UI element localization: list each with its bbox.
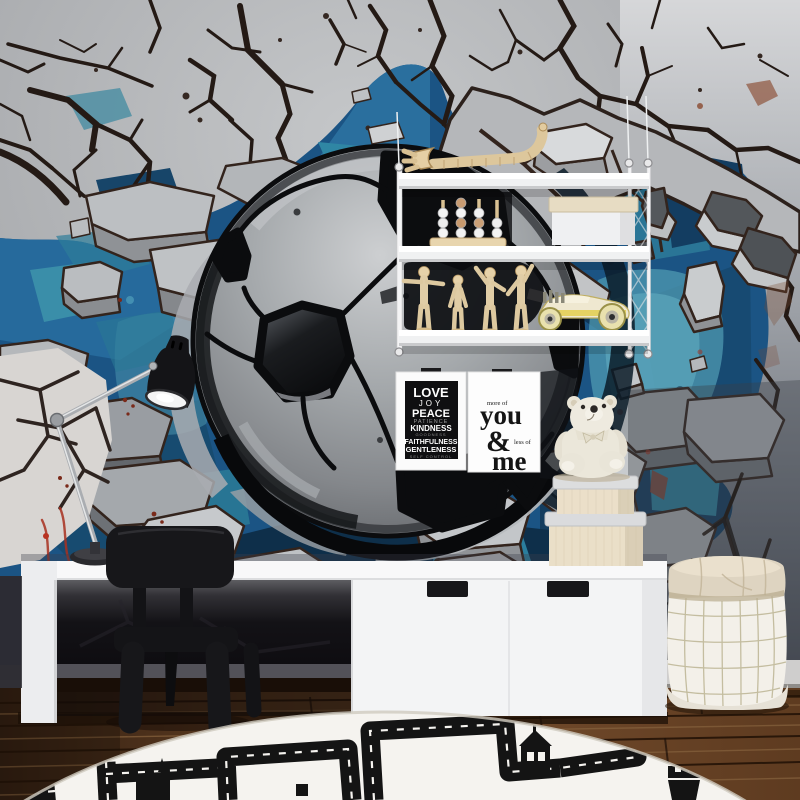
- svg-text:me: me: [492, 446, 526, 476]
- svg-text:LOVE: LOVE: [413, 385, 449, 400]
- svg-text:GENTLENESS: GENTLENESS: [406, 445, 457, 454]
- svg-text:SELF CONTROL: SELF CONTROL: [410, 454, 453, 459]
- svg-text:JOY: JOY: [419, 399, 444, 408]
- svg-text:GOODNESS: GOODNESS: [415, 432, 446, 437]
- svg-text:less of: less of: [514, 439, 532, 446]
